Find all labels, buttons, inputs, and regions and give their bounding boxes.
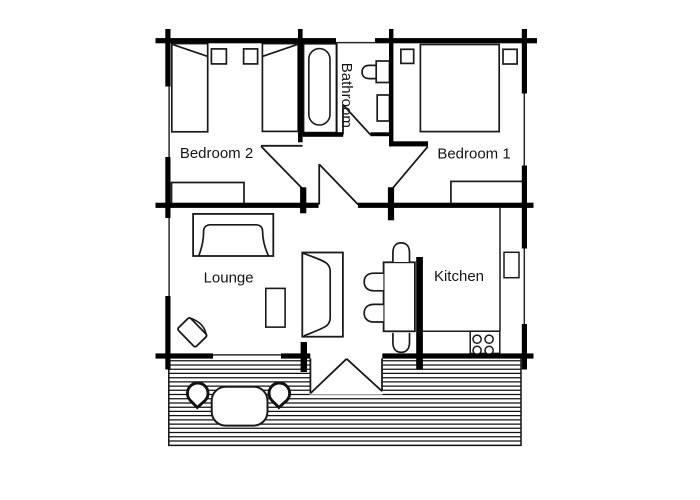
svg-text:Bedroom 1: Bedroom 1 — [437, 146, 510, 163]
svg-text:Bathroom: Bathroom — [338, 63, 355, 128]
svg-text:Lounge: Lounge — [204, 269, 254, 286]
svg-text:Bedroom 2: Bedroom 2 — [180, 145, 253, 162]
svg-text:Kitchen: Kitchen — [434, 268, 484, 285]
